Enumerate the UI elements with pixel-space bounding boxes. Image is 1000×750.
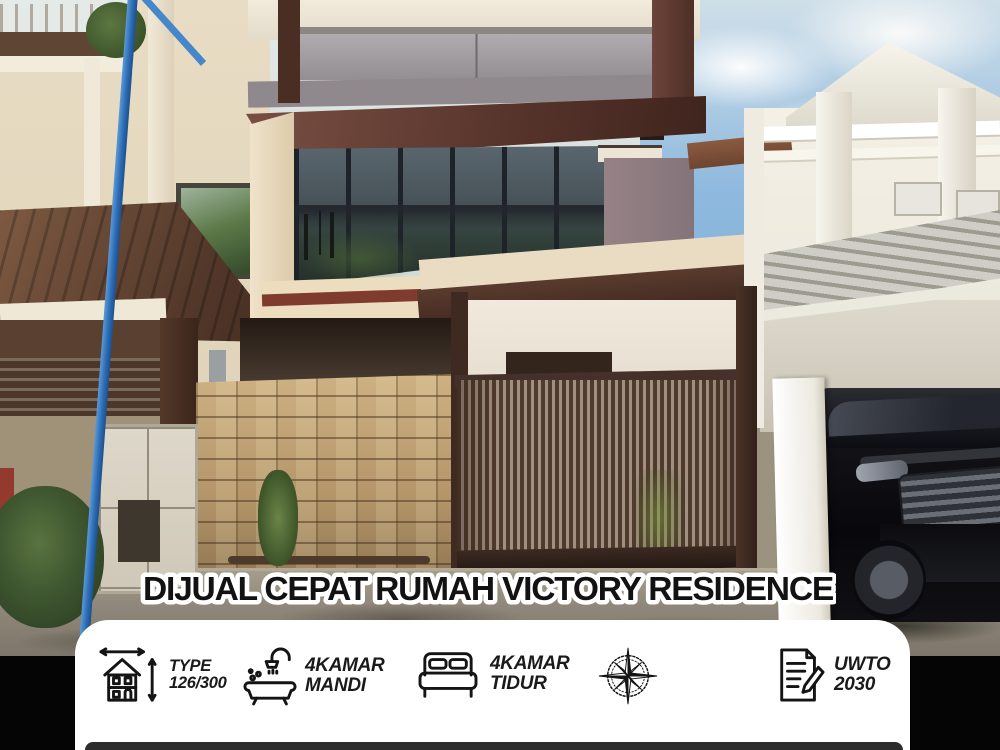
info-line2: 2030 [834, 675, 891, 695]
listing-poster: DIJUAL CEPAT RUMAH VICTORY RESIDENCE TYP… [0, 0, 1000, 750]
house-photo [0, 0, 1000, 656]
cabinet-opening [118, 500, 160, 562]
info-item-bedrooms: 4KAMAR TIDUR [415, 646, 569, 702]
info-line2: TIDUR [490, 674, 569, 694]
left-roof-ledge [0, 56, 133, 72]
gate-right-post [736, 286, 757, 572]
info-line1: UWTO [834, 655, 891, 675]
shower-bathtub-icon [243, 646, 297, 706]
info-item-type: TYPE 126/300 [97, 646, 227, 704]
stone-fence-wall [196, 374, 458, 586]
compass-icon [597, 646, 659, 706]
small-gray-pillar [209, 350, 226, 382]
info-item-bathrooms: 4KAMAR MANDI [243, 646, 384, 706]
house-dimensions-icon [97, 646, 159, 704]
ac-unit [894, 182, 942, 216]
balcony-left-post [278, 0, 300, 103]
gate-slats [457, 380, 749, 563]
suv-wheel [852, 540, 926, 620]
pipe [228, 556, 430, 564]
info-line1: 4KAMAR [305, 656, 384, 676]
balcony-glass-parapet [292, 34, 662, 80]
info-line2: 126/300 [169, 675, 227, 692]
card-bottom-bar [85, 742, 903, 750]
suv-grille [898, 465, 1000, 532]
roof-plants [86, 2, 146, 58]
info-line1: 4KAMAR [490, 654, 569, 674]
small-plant [258, 470, 298, 566]
bed-icon [415, 646, 481, 702]
document-pen-icon [774, 646, 826, 704]
poster-title: DIJUAL CEPAT RUMAH VICTORY RESIDENCE [140, 566, 836, 614]
info-item-compass [597, 646, 665, 706]
info-item-uwto: UWTO 2030 [774, 646, 891, 704]
right-house-column [816, 92, 852, 262]
info-line2: MANDI [305, 676, 384, 696]
poster-title-text: DIJUAL CEPAT RUMAH VICTORY RESIDENCE [143, 570, 833, 607]
left-pilaster [84, 58, 100, 210]
carport-shadow [240, 318, 466, 382]
info-line1: TYPE [169, 658, 227, 675]
lamp-reflection [330, 212, 334, 258]
white-pillar-slab [772, 377, 831, 656]
info-card: TYPE 126/300 4KAMAR MANDI [75, 620, 910, 750]
